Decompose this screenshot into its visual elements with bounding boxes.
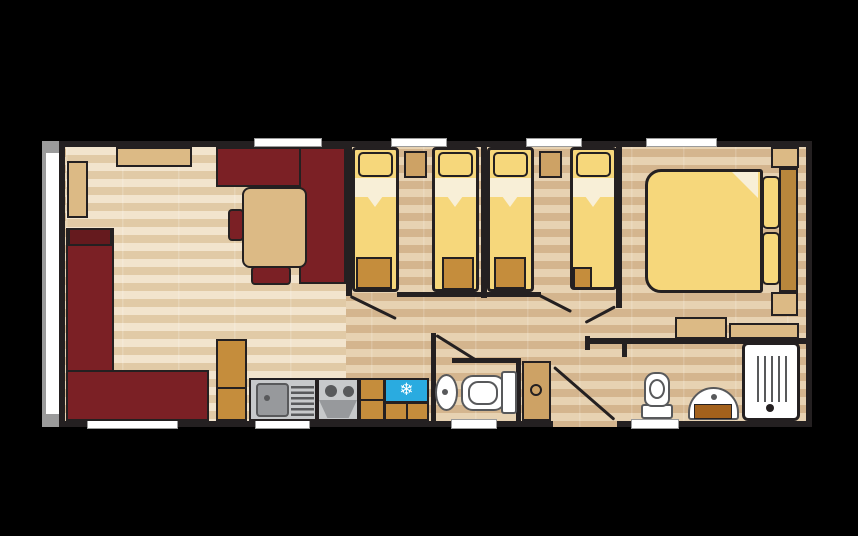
kitchen-tall-cabinet-divider	[218, 387, 245, 389]
shower-ridges	[757, 356, 787, 402]
entrance-door-knob	[530, 384, 542, 396]
bedroom3-bed-right	[570, 147, 617, 290]
window-bottom-ensuite	[631, 419, 679, 429]
left-window-cap-top	[46, 141, 59, 153]
bedroom3-nightstand	[539, 151, 562, 178]
kitchen-sink-bowl	[256, 383, 289, 417]
cooker-burner-left	[325, 385, 337, 397]
wall-left	[59, 141, 65, 427]
shower-drain	[766, 404, 774, 412]
window-bottom-wc	[451, 419, 497, 429]
master-pillow-top	[762, 176, 780, 229]
wc-toilet-bowl-inner	[468, 381, 498, 405]
bed-pillow	[576, 152, 611, 177]
bedroom2-bed-right	[432, 147, 479, 292]
lounge-side-unit	[67, 161, 88, 218]
bed-sheet	[435, 178, 476, 197]
bed-foot-drawer	[494, 257, 526, 289]
master-wardrobe-bottom	[771, 292, 798, 316]
sofa-armrest	[68, 228, 112, 246]
dining-bench-top	[216, 147, 303, 187]
bedroom3-bed-left	[487, 147, 534, 292]
bed-pillow	[358, 152, 393, 177]
wall-right	[806, 141, 812, 427]
kitchen-counter-divider	[361, 399, 383, 401]
ensuite-toilet-bowl-inner	[649, 379, 665, 399]
dining-chair-bottom	[251, 266, 291, 285]
master-pillow-bottom	[762, 232, 780, 285]
wall-hallway-b	[487, 292, 541, 297]
dining-table	[242, 187, 307, 268]
bed-foot-drawer	[356, 257, 392, 289]
sofa-seat	[66, 370, 209, 421]
kitchen-sink-drain	[264, 395, 270, 401]
bed-foot-drawer	[442, 257, 474, 290]
bed-sheet-fold	[502, 196, 518, 207]
window-top-master	[646, 138, 717, 147]
master-wardrobe-top	[771, 147, 799, 168]
bed-sheet	[355, 178, 396, 197]
left-window-cap-bottom	[46, 414, 59, 427]
bed-pillow	[438, 152, 473, 177]
bedroom2-nightstand	[404, 151, 427, 178]
wall-wc-top	[452, 358, 521, 363]
master-headboard	[779, 168, 798, 292]
wall-ensuite-stub	[622, 344, 627, 357]
kitchen-freezer-divider	[406, 404, 408, 419]
wall-ensuite-cap	[585, 336, 590, 350]
bed-sheet	[490, 178, 531, 197]
bed-sheet-fold	[367, 196, 383, 207]
master-double-bed	[645, 169, 763, 293]
wall-wc-left	[431, 333, 436, 427]
cooker-burner-right	[343, 386, 354, 397]
bedroom2-bed-left	[352, 147, 399, 292]
wall-hallway-a	[397, 292, 481, 297]
ensuite-basin-tap	[711, 394, 717, 400]
window-top-bedroom3	[526, 138, 582, 147]
floorplan-canvas: ❄	[0, 0, 858, 536]
wc-basin-drain	[442, 389, 448, 395]
bed-sheet-fold	[585, 196, 601, 207]
bed-sheet-fold	[732, 172, 758, 198]
window-top-bedroom2	[391, 138, 447, 147]
fridge-snowflake-icon: ❄	[399, 382, 413, 399]
bed-foot-drawer	[573, 267, 592, 289]
bed-sheet	[573, 178, 614, 197]
bed-sheet-fold	[447, 196, 463, 207]
wc-toilet-cistern	[501, 371, 517, 414]
ensuite-basin-cabinet	[694, 404, 732, 419]
master-dresser-right	[729, 323, 799, 339]
left-window-glass	[46, 153, 59, 414]
bed-pillow	[493, 152, 528, 177]
kitchen-fridge: ❄	[384, 378, 429, 403]
master-dresser-left	[675, 317, 727, 339]
lounge-top-shelf	[116, 147, 192, 167]
kitchen-drainer	[291, 386, 314, 416]
kitchen-tall-cabinet	[216, 339, 247, 421]
window-top-lounge	[254, 138, 322, 147]
